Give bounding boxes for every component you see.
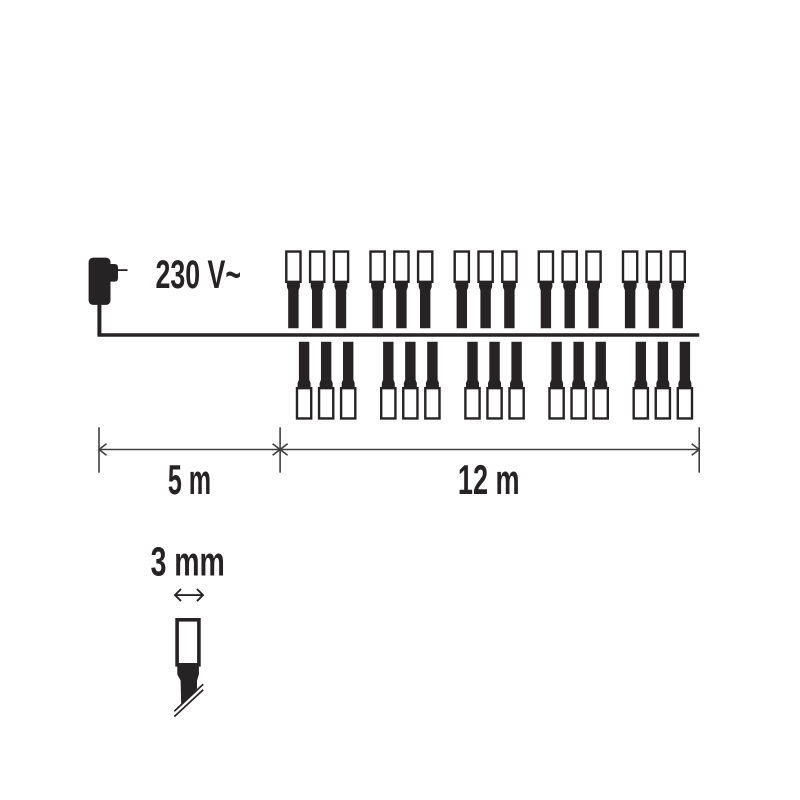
svg-text:5 m: 5 m bbox=[168, 458, 211, 504]
svg-text:3 mm: 3 mm bbox=[151, 539, 225, 584]
svg-text:230 V~: 230 V~ bbox=[155, 253, 241, 298]
svg-text:12 m: 12 m bbox=[458, 457, 520, 503]
